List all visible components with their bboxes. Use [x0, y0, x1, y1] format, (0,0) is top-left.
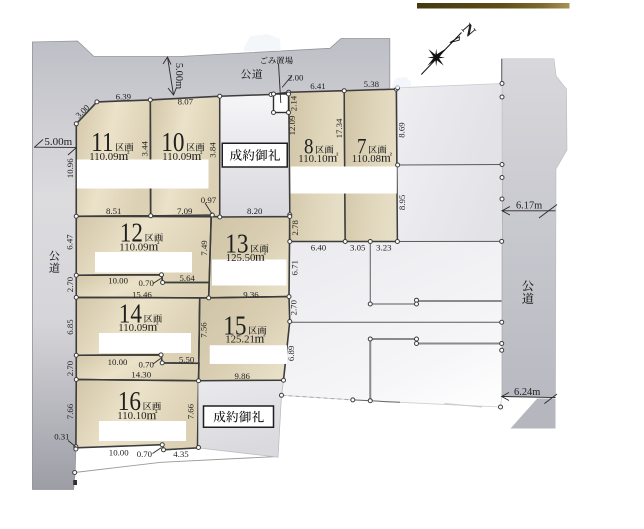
svg-text:0.70: 0.70: [138, 278, 154, 288]
svg-text:110.08: 110.08: [352, 153, 381, 165]
svg-text:9.86: 9.86: [234, 371, 250, 381]
svg-text:7.49: 7.49: [199, 240, 209, 256]
svg-text:2.00: 2.00: [288, 73, 304, 83]
svg-text:6.89: 6.89: [286, 345, 296, 361]
svg-text:3.05: 3.05: [350, 243, 366, 253]
svg-text:5.64: 5.64: [179, 273, 195, 283]
svg-text:8.69: 8.69: [396, 122, 406, 138]
svg-text:8.51: 8.51: [106, 206, 121, 216]
svg-text:8.20: 8.20: [247, 206, 263, 216]
svg-text:6.24m: 6.24m: [514, 387, 540, 398]
svg-text:3.44: 3.44: [140, 141, 150, 157]
svg-text:110.09: 110.09: [118, 322, 147, 334]
svg-text:6.41: 6.41: [310, 81, 325, 91]
svg-text:6.17m: 6.17m: [516, 201, 542, 212]
svg-text:3.23: 3.23: [376, 243, 392, 253]
svg-text:125.50: 125.50: [226, 252, 256, 264]
svg-text:5.38: 5.38: [364, 79, 380, 89]
svg-text:10.96: 10.96: [65, 158, 75, 178]
svg-text:8.95: 8.95: [397, 194, 407, 210]
svg-text:2.70: 2.70: [289, 299, 299, 315]
svg-text:2.70: 2.70: [65, 360, 75, 376]
svg-text:7.09: 7.09: [177, 206, 193, 216]
svg-text:5.00m: 5.00m: [44, 136, 72, 148]
svg-text:5.50: 5.50: [179, 355, 195, 365]
svg-text:2.14: 2.14: [289, 95, 299, 111]
svg-text:110.09: 110.09: [162, 151, 191, 163]
svg-text:12.09: 12.09: [287, 115, 297, 135]
svg-text:8.07: 8.07: [178, 96, 194, 106]
svg-text:110.09: 110.09: [89, 151, 118, 163]
svg-text:0.70: 0.70: [138, 360, 154, 370]
svg-text:4.35: 4.35: [173, 449, 189, 459]
svg-text:0.70: 0.70: [137, 449, 153, 459]
svg-text:6.39: 6.39: [116, 91, 132, 101]
svg-text:0.31: 0.31: [54, 432, 69, 442]
svg-text:110.10: 110.10: [117, 410, 146, 422]
svg-text:2.78: 2.78: [290, 220, 300, 236]
svg-text:7.66: 7.66: [186, 403, 196, 419]
svg-text:14.30: 14.30: [131, 370, 151, 380]
svg-text:6.40: 6.40: [311, 243, 327, 253]
svg-text:15.46: 15.46: [132, 290, 152, 300]
svg-text:7.66: 7.66: [65, 403, 75, 419]
svg-text:6.71: 6.71: [289, 260, 299, 275]
svg-text:N: N: [458, 21, 479, 41]
svg-text:0.97: 0.97: [201, 195, 217, 205]
svg-text:110.09: 110.09: [119, 241, 148, 253]
svg-text:125.21: 125.21: [225, 334, 255, 346]
svg-text:5.00m: 5.00m: [173, 63, 184, 89]
svg-text:10.00: 10.00: [108, 276, 128, 286]
svg-text:3.84: 3.84: [208, 142, 218, 158]
svg-text:2.70: 2.70: [65, 276, 75, 292]
svg-text:17.34: 17.34: [334, 118, 344, 138]
svg-text:110.10: 110.10: [298, 153, 327, 165]
svg-text:6.47: 6.47: [65, 234, 75, 250]
svg-text:7.56: 7.56: [199, 322, 209, 338]
svg-text:6.85: 6.85: [65, 319, 75, 335]
svg-text:10.00: 10.00: [108, 357, 128, 367]
svg-text:9.36: 9.36: [243, 289, 259, 299]
svg-text:10.00: 10.00: [109, 448, 129, 458]
